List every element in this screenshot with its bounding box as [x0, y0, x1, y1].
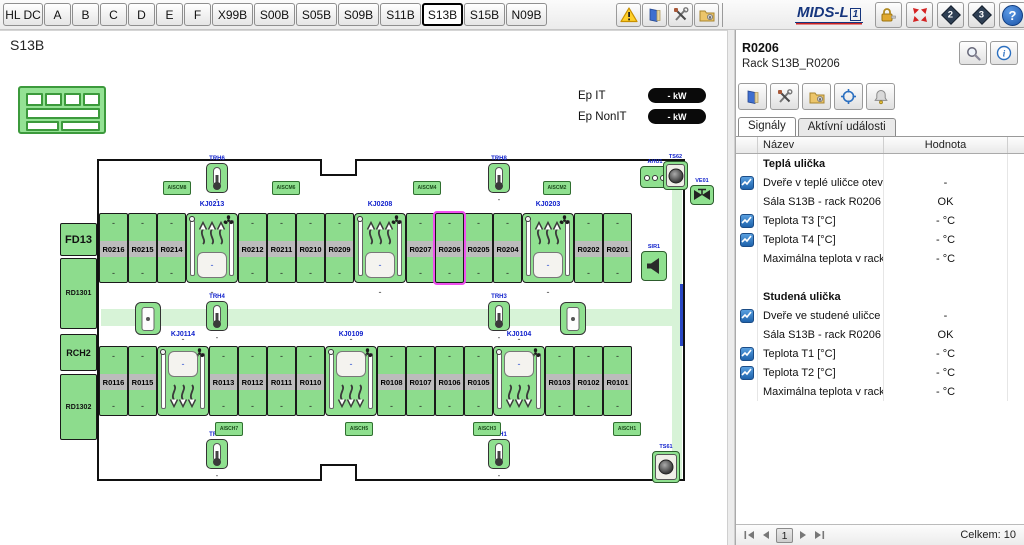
main-toolbar: HL DCABCDEFX99BS00BS05BS09BS11BS13BS15BN… [0, 0, 1024, 30]
info-icon: i [996, 45, 1012, 61]
crac-kj0109[interactable]: -KJ0109- [325, 346, 377, 416]
info-button[interactable]: i [990, 41, 1018, 65]
rack-r0202[interactable]: -R0202- [574, 213, 603, 283]
rack-label: R0112 [239, 374, 266, 390]
rack-label: R0202 [575, 241, 602, 257]
rack-label: R0201 [604, 241, 631, 257]
lock-button[interactable] [875, 2, 902, 28]
rack-label: R0102 [575, 374, 602, 390]
mids-logo: MIDS-L1 [795, 4, 863, 23]
rack-label: R0209 [326, 241, 353, 257]
value-column-header: Hodnota [884, 137, 1008, 153]
group-row: Studená ulička [736, 287, 1024, 306]
rack-r0111[interactable]: -R0111- [267, 346, 296, 416]
rack-r0206[interactable]: -R0206- [435, 213, 464, 283]
sensor-aisch7[interactable]: AISCH7 [215, 422, 243, 436]
crac-kj0213[interactable]: -KJ0213- [186, 213, 238, 283]
signal-value: - °C [884, 382, 1008, 401]
rack-label: R0216 [100, 241, 127, 257]
signal-value [884, 154, 1008, 173]
signal-value [884, 268, 1008, 287]
warning-icon [620, 7, 638, 23]
rack-r0103[interactable]: -R0103- [545, 346, 574, 416]
rack-label: R0108 [378, 374, 405, 390]
trend-icon[interactable] [740, 309, 754, 323]
signal-row[interactable]: Sála S13B - rack R0206 - stuOK [736, 325, 1024, 344]
archive-button[interactable] [694, 3, 719, 27]
rack-label: R0211 [268, 241, 295, 257]
crac-label: KJ0213 [200, 201, 225, 208]
signal-row[interactable]: Teplota T4 [°C]- °C [736, 230, 1024, 249]
tab-s13b[interactable]: S13B [422, 3, 463, 26]
crac-status: - [197, 252, 227, 278]
selected-object-title: R0206 [742, 41, 779, 55]
rack-r0215[interactable]: -R0215- [128, 213, 157, 283]
signal-row[interactable]: Teplota T1 [°C]- °C [736, 344, 1024, 363]
rack-r0207[interactable]: -R0207- [406, 213, 435, 283]
sensor-aiscm8[interactable]: AISCM8 [163, 181, 191, 195]
signal-row[interactable]: Teplota T2 [°C]- °C [736, 363, 1024, 382]
sensor-aisch1[interactable]: AISCH1 [613, 422, 641, 436]
tab-s15b[interactable]: S15B [464, 3, 505, 26]
rack-label: R0113 [210, 374, 237, 390]
rack-label: R0103 [546, 374, 573, 390]
signal-row[interactable]: Dveře ve studené uličce otevř- [736, 306, 1024, 325]
door-notch-top [320, 159, 357, 176]
crosshair-icon [840, 88, 857, 105]
exit-door-icon [745, 89, 760, 105]
rack-r0204[interactable]: -R0204- [493, 213, 522, 283]
rack-r0105[interactable]: -R0105- [464, 346, 493, 416]
rack-r0214[interactable]: -R0214- [157, 213, 186, 283]
signal-value: - °C [884, 249, 1008, 268]
signal-value: - °C [884, 363, 1008, 382]
tab-hl-dc[interactable]: HL DC [3, 3, 43, 26]
signal-name: Teplá ulička [758, 154, 884, 173]
rack-r0211[interactable]: -R0211- [267, 213, 296, 283]
signal-value: - °C [884, 211, 1008, 230]
signal-name: Dveře v teplé uličce otevřené [758, 173, 884, 192]
level2-button[interactable]: 2 [937, 2, 964, 28]
group-row: Teplá ulička [736, 154, 1024, 173]
panel-header-buttons: i [959, 41, 1018, 65]
rack-label: R0111 [268, 374, 295, 390]
signal-row[interactable]: Dveře v teplé uličce otevřené- [736, 173, 1024, 192]
crac-status: - [504, 351, 534, 377]
rack-label: R0214 [158, 241, 185, 257]
rack-label: R0205 [465, 241, 492, 257]
toolbar-icon-group [616, 3, 719, 27]
rack-label: R0115 [129, 374, 156, 390]
name-column-header: Název [758, 137, 884, 153]
fan-unit-bottom[interactable]: TS61 [652, 451, 680, 483]
rack-label: R0106 [436, 374, 463, 390]
crac-label: KJ0208 [368, 201, 393, 208]
crac-kj0208[interactable]: -KJ0208- [354, 213, 406, 283]
panel-settings-button[interactable] [770, 83, 799, 110]
thermometer-label: TRH6 [209, 156, 225, 162]
lock-icon [880, 7, 897, 23]
thermometer-label: TRH3 [491, 294, 507, 300]
signal-name: Maximálna teplota v racku R0 [758, 249, 884, 268]
panel-archive-button[interactable] [802, 83, 831, 110]
rack-r0102[interactable]: -R0102- [574, 346, 603, 416]
tab-d[interactable]: D [128, 3, 155, 26]
alarms-button[interactable] [616, 3, 641, 27]
tab-x99b[interactable]: X99B [212, 3, 253, 26]
panel-exit-button[interactable] [738, 83, 767, 110]
thermometer-label: TRH4 [209, 294, 225, 300]
signal-name: Teplota T2 [°C] [758, 363, 884, 382]
valve-icon [692, 188, 712, 202]
sensor-aiscm2[interactable]: AISCM2 [543, 181, 571, 195]
fan-unit-top[interactable]: TS62 [663, 161, 688, 190]
last-page-button[interactable] [814, 530, 825, 540]
aisle-door-sensor[interactable] [135, 302, 161, 335]
floor-plan: FD13RD1301RCH2RD1302-R0216--R0215--R0214… [0, 31, 727, 545]
speaker-icon [645, 256, 663, 276]
current-page[interactable]: 1 [776, 528, 793, 543]
rack-r0116[interactable]: -R0116- [99, 346, 128, 416]
signals-table: Název Hodnota Teplá uličkaDveře v teplé … [736, 136, 1024, 401]
logo-version: 1 [850, 8, 862, 21]
help-button[interactable]: ? [999, 2, 1024, 28]
rack-r0107[interactable]: -R0107- [406, 346, 435, 416]
tab-signals[interactable]: Signály [738, 117, 796, 136]
tab-n09b[interactable]: N09B [506, 3, 547, 26]
sensor-aiscm6[interactable]: AISCM6 [272, 181, 300, 195]
thermometer-label: TRH8 [491, 156, 507, 162]
diamond-3-icon: 3 [972, 5, 992, 25]
device-label: TS61 [659, 444, 672, 450]
signal-value [884, 287, 1008, 306]
toolbar-divider [722, 3, 723, 27]
wall-marker [680, 284, 683, 346]
floor-plan-panel: S13B Ep IT - kW Ep NonIT - kW FD13RD1301… [0, 30, 727, 545]
prev-page-button[interactable] [761, 530, 770, 540]
next-page-button[interactable] [799, 530, 808, 540]
crac-status: - [168, 351, 198, 377]
crac-label: KJ0203 [536, 201, 561, 208]
device-label: SIR1 [648, 244, 660, 250]
unit-fd13[interactable]: FD13 [60, 223, 97, 256]
crac-kj0114[interactable]: -KJ0114- [157, 346, 209, 416]
valve-unit[interactable]: VE01 [690, 185, 714, 205]
dc-tab-strip: HL DCABCDEFX99BS00BS05BS09BS11BS13BS15BN… [3, 3, 548, 26]
signal-name [758, 268, 884, 287]
settings-button[interactable] [668, 3, 693, 27]
trend-icon[interactable] [740, 233, 754, 247]
signal-value: - [884, 306, 1008, 325]
rack-r0108[interactable]: -R0108- [377, 346, 406, 416]
signal-row[interactable]: Teplota T3 [°C]- °C [736, 211, 1024, 230]
rack-r0201[interactable]: -R0201- [603, 213, 632, 283]
signal-name: Teplota T3 [°C] [758, 211, 884, 230]
signal-row[interactable]: Sála S13B - rack R0206 - teplOK [736, 192, 1024, 211]
collapse-button[interactable] [906, 2, 933, 28]
tab-active-events[interactable]: Aktívní události [798, 118, 896, 136]
tab-c[interactable]: C [100, 3, 127, 26]
rack-r0106[interactable]: -R0106- [435, 346, 464, 416]
rack-label: R0101 [604, 374, 631, 390]
crac-kj0104[interactable]: -KJ0104- [493, 346, 545, 416]
signal-row[interactable]: Maximálna teplota v racku R0- °C [736, 382, 1024, 401]
locate-button[interactable] [834, 83, 863, 110]
collapse-arrows-icon [912, 7, 928, 23]
rack-label: R0116 [100, 374, 127, 390]
rack-r0212[interactable]: -R0212- [238, 213, 267, 283]
rack-r0205[interactable]: -R0205- [464, 213, 493, 283]
bell-icon [873, 89, 889, 105]
window-button-group: 2 3 ? [875, 2, 1024, 28]
aisle-door-sensor[interactable] [560, 302, 586, 335]
signal-value: OK [884, 325, 1008, 344]
icon-column-header [736, 137, 758, 153]
thermometer-trh8[interactable]: TRH8- [488, 163, 510, 193]
unit-rch2[interactable]: RCH2 [60, 334, 97, 371]
crac-kj0203[interactable]: -KJ0203- [522, 213, 574, 283]
magnifier-icon [966, 46, 981, 61]
tab-s05b[interactable]: S05B [296, 3, 337, 26]
tab-e[interactable]: E [156, 3, 183, 26]
rack-label: R0207 [407, 241, 434, 257]
trend-icon[interactable] [740, 176, 754, 190]
table-header: Název Hodnota [736, 136, 1024, 154]
thermometer-trh1[interactable]: TRH1- [488, 439, 510, 469]
selected-object-subtitle: Rack S13B_R0206 [742, 58, 840, 70]
device-label: AHU1 [648, 159, 663, 165]
help-icon: ? [1002, 5, 1023, 26]
unit-rd1302[interactable]: RD1302 [60, 374, 97, 440]
tab-s09b[interactable]: S09B [338, 3, 379, 26]
signal-name: Teplota T4 [°C] [758, 230, 884, 249]
device-label: TS62 [669, 154, 682, 160]
rack-label: R0110 [297, 374, 324, 390]
rack-label: R0204 [494, 241, 521, 257]
signal-value: - °C [884, 344, 1008, 363]
exit-button[interactable] [642, 3, 667, 27]
rack-r0112[interactable]: -R0112- [238, 346, 267, 416]
tools-icon [777, 89, 793, 105]
level3-button[interactable]: 3 [968, 2, 995, 28]
crac-status: - [336, 351, 366, 377]
fan-icon [659, 460, 674, 475]
folder-lock-icon [699, 8, 715, 22]
signal-value: - [884, 173, 1008, 192]
trend-icon[interactable] [740, 366, 754, 380]
rack-label: R0105 [465, 374, 492, 390]
rack-r0210[interactable]: -R0210- [296, 213, 325, 283]
folder-lock-icon [809, 90, 825, 104]
rack-r0115[interactable]: -R0115- [128, 346, 157, 416]
tab-f[interactable]: F [184, 3, 211, 26]
panel-tab-strip: Signály Aktívní události [738, 116, 898, 136]
rack-label: R0215 [129, 241, 156, 257]
rack-r0110[interactable]: -R0110- [296, 346, 325, 416]
tab-s00b[interactable]: S00B [254, 3, 295, 26]
siren-unit[interactable]: SIR1 [641, 251, 667, 281]
signal-name: Sála S13B - rack R0206 - tepl [758, 192, 884, 211]
thermometer-trh4[interactable]: TRH4- [206, 301, 228, 331]
signal-value: OK [884, 192, 1008, 211]
signal-name: Studená ulička [758, 287, 884, 306]
fan-icon [668, 168, 683, 183]
door-notch-bottom [320, 464, 357, 481]
panel-splitter[interactable] [727, 30, 735, 545]
tab-s11b[interactable]: S11B [380, 3, 421, 26]
zoom-to-button[interactable] [959, 41, 987, 65]
sensor-aiscm4[interactable]: AISCM4 [413, 181, 441, 195]
rack-r0209[interactable]: -R0209- [325, 213, 354, 283]
rack-r0113[interactable]: -R0113- [209, 346, 238, 416]
signal-name: Teplota T1 [°C] [758, 344, 884, 363]
panel-toolbar [738, 83, 895, 110]
sensor-aisch5[interactable]: AISCH5 [345, 422, 373, 436]
unit-rd1301[interactable]: RD1301 [60, 258, 97, 329]
signal-name: Maximálna teplota v racku R0 [758, 382, 884, 401]
first-page-button[interactable] [744, 530, 755, 540]
trend-icon[interactable] [740, 214, 754, 228]
crac-status: - [533, 252, 563, 278]
rack-label: R0206 [436, 241, 463, 257]
thermometer-trh2[interactable]: TRH2- [206, 439, 228, 469]
thermometer-trh3[interactable]: TRH3- [488, 301, 510, 331]
detail-panel: R0206 Rack S13B_R0206 i Signály Aktívní … [735, 30, 1024, 545]
pager: 1 Celkem: 10 [736, 524, 1024, 545]
rack-label: R0210 [297, 241, 324, 257]
exit-door-icon [647, 7, 662, 23]
crac-status: - [365, 252, 395, 278]
logo-text: MIDS-L [797, 4, 849, 21]
signal-name: Sála S13B - rack R0206 - stu [758, 325, 884, 344]
tools-icon [673, 7, 689, 23]
signal-value: - °C [884, 230, 1008, 249]
cold-aisle-band [101, 309, 679, 326]
alarm-bell-button[interactable] [866, 83, 895, 110]
diamond-2-icon: 2 [941, 5, 961, 25]
spacer-row [736, 268, 1024, 287]
rack-label: R0107 [407, 374, 434, 390]
rack-r0216[interactable]: -R0216- [99, 213, 128, 283]
signal-row[interactable]: Maximálna teplota v racku R0- °C [736, 249, 1024, 268]
device-label: VE01 [695, 178, 708, 184]
signal-name: Dveře ve studené uličce otevř [758, 306, 884, 325]
thermometer-trh6[interactable]: TRH6- [206, 163, 228, 193]
trend-icon[interactable] [740, 347, 754, 361]
rack-r0101[interactable]: -R0101- [603, 346, 632, 416]
rack-label: R0212 [239, 241, 266, 257]
tab-a[interactable]: A [44, 3, 71, 26]
sensor-aisch3[interactable]: AISCH3 [473, 422, 501, 436]
tab-b[interactable]: B [72, 3, 99, 26]
total-count: Celkem: 10 [960, 529, 1016, 541]
